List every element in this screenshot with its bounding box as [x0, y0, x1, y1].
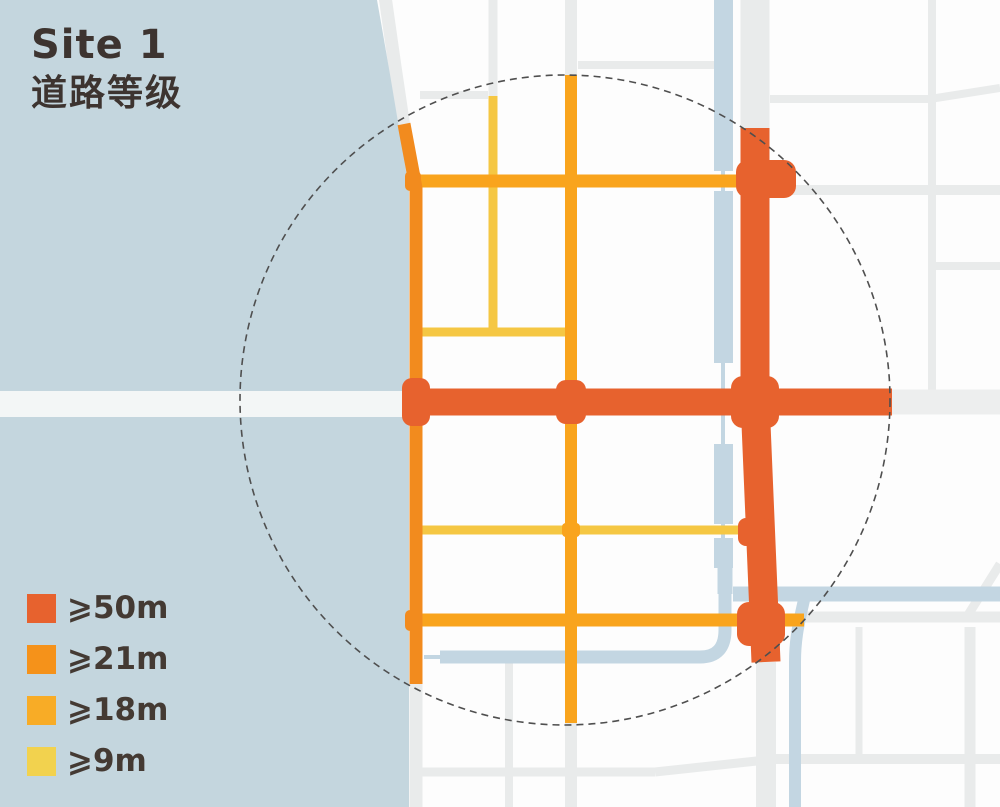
- canal-segment: [714, 0, 733, 171]
- road-grade-map-page: Site 1 道路等级 ⩾50m ⩾21m ⩾18m ⩾9m: [0, 0, 1000, 807]
- road-50m-junction: [731, 376, 779, 428]
- legend-swatch-21m: [27, 645, 56, 674]
- legend-label-9m: ⩾9m: [67, 747, 147, 776]
- legend-label-50m: ⩾50m: [67, 594, 168, 623]
- road-21m-junction: [405, 610, 421, 631]
- road-50m-junction: [736, 160, 796, 198]
- legend-swatch-50m: [27, 594, 56, 623]
- legend-row-9m: ⩾9m: [27, 747, 168, 776]
- page-title: Site 1: [31, 20, 183, 71]
- road-grade-legend: ⩾50m ⩾21m ⩾18m ⩾9m: [27, 594, 168, 798]
- road-band-over-water: [0, 391, 409, 417]
- road-21m-junction: [405, 171, 421, 191]
- legend-swatch-18m: [27, 696, 56, 725]
- legend-row-18m: ⩾18m: [27, 696, 168, 725]
- legend-label-21m: ⩾21m: [67, 645, 168, 674]
- legend-row-21m: ⩾21m: [27, 645, 168, 674]
- legend-swatch-9m: [27, 747, 56, 776]
- road-50m-junction: [556, 380, 586, 424]
- canal-segment: [714, 191, 733, 363]
- road-50m-junction: [737, 602, 785, 646]
- road-50m-junction: [738, 518, 772, 546]
- legend-label-18m: ⩾18m: [67, 696, 168, 725]
- title-block: Site 1 道路等级: [31, 20, 183, 117]
- page-subtitle: 道路等级: [31, 71, 183, 117]
- road-50m-junction: [402, 378, 430, 426]
- legend-row-50m: ⩾50m: [27, 594, 168, 623]
- canal-narrow: [424, 655, 440, 659]
- road-18m-junction: [562, 523, 580, 537]
- canal-segment: [714, 444, 733, 524]
